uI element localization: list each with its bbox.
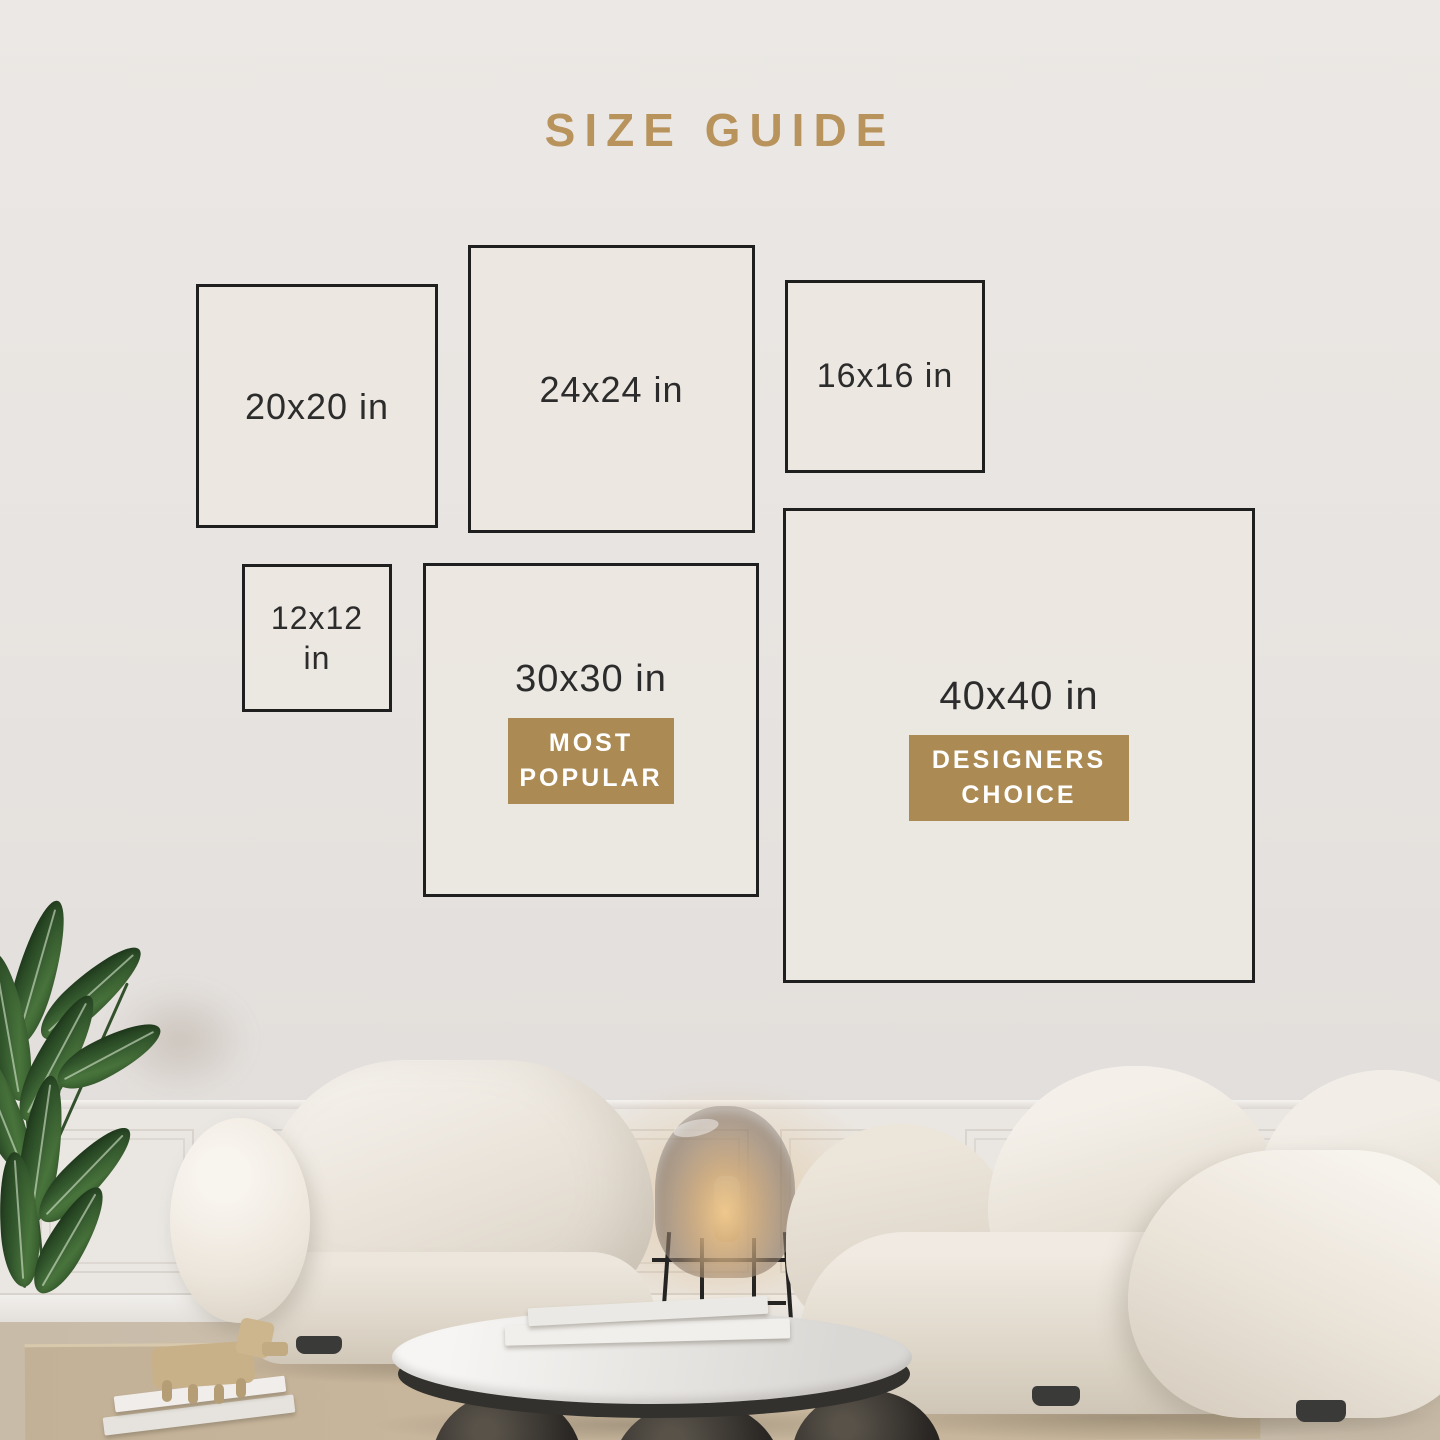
wood-dog-figurine-leg xyxy=(188,1384,198,1404)
size-label: 12x12 in xyxy=(267,598,367,678)
size-label: 30x30 in xyxy=(515,656,667,704)
armchair-arm-cushion xyxy=(170,1118,310,1323)
lamp-glass-shade xyxy=(655,1106,795,1278)
size-label: 40x40 in xyxy=(939,671,1098,721)
size-box-40x40: 40x40 in DESIGNERS CHOICE xyxy=(783,508,1255,983)
size-label: 20x20 in xyxy=(245,384,389,429)
wood-dog-figurine-leg xyxy=(214,1384,224,1404)
size-label: 24x24 in xyxy=(539,367,683,412)
size-box-16x16: 16x16 in xyxy=(785,280,985,473)
wood-dog-figurine-snout xyxy=(262,1342,288,1356)
armchair-foot xyxy=(296,1336,342,1354)
potted-plant xyxy=(0,880,190,1300)
wood-dog-figurine-leg xyxy=(236,1378,246,1398)
wood-dog-figurine-leg xyxy=(162,1380,172,1402)
most-popular-badge: MOST POPULAR xyxy=(508,718,674,804)
size-guide-image: SIZE GUIDE 20x20 in 24x24 in 16x16 in 12… xyxy=(0,0,1440,1440)
size-box-12x12: 12x12 in xyxy=(242,564,392,712)
sofa-foot xyxy=(1296,1400,1346,1422)
size-box-20x20: 20x20 in xyxy=(196,284,438,528)
size-label: 16x16 in xyxy=(817,355,954,398)
sofa-arm-cushion xyxy=(1128,1150,1440,1418)
size-box-24x24: 24x24 in xyxy=(468,245,755,533)
page-title: SIZE GUIDE xyxy=(0,103,1440,157)
sofa-foot xyxy=(1032,1386,1080,1406)
size-box-30x30: 30x30 in MOST POPULAR xyxy=(423,563,759,897)
designers-choice-badge: DESIGNERS CHOICE xyxy=(909,735,1129,821)
